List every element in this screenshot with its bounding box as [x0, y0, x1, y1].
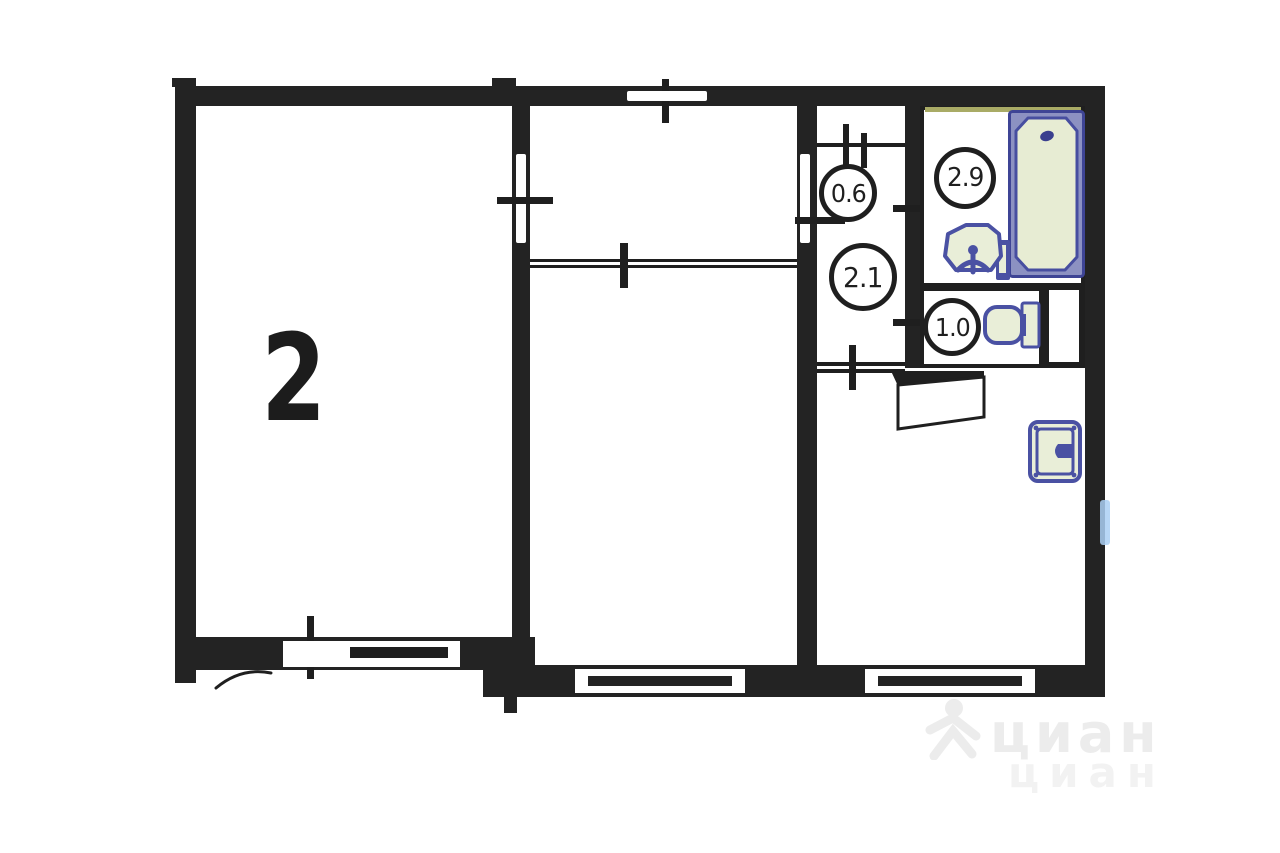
toilet-icon [982, 300, 1042, 350]
bath-sink-icon [936, 220, 1014, 286]
room-number-text: 2 [261, 310, 326, 449]
room-number-label: 2 [261, 320, 326, 440]
door-tick-left-room [497, 197, 553, 204]
wc-area-value: 1.0 [935, 313, 970, 342]
niche-box [1043, 284, 1085, 368]
watermark-text: циан [1008, 748, 1166, 797]
window-icon [575, 669, 745, 676]
partition-middle-room-b [530, 265, 797, 268]
partition-middle-room-a [530, 259, 797, 262]
window-icon [865, 686, 1035, 693]
window-sill-cap [732, 676, 745, 686]
bathtub-icon [1008, 110, 1085, 278]
kitchen-sink-icon [1028, 420, 1082, 483]
door-leaf-icon [890, 368, 990, 432]
floor-plan: 2 0.6 2.1 2.9 1.0 циан циан [0, 0, 1280, 853]
door-leaf-middle-room [800, 154, 810, 243]
door-swing-arc-icon [210, 664, 276, 692]
area-badge-wc: 1.0 [923, 298, 981, 356]
window-sill-cap [865, 676, 878, 686]
entrance-door-tick-b [861, 133, 867, 168]
window-icon [575, 686, 745, 693]
window-sash [350, 647, 448, 658]
wall-right-exterior [1085, 86, 1105, 697]
window-icon [865, 669, 1035, 676]
window-sill-cap [1022, 676, 1035, 686]
partition-corridor-bottom-a [817, 362, 905, 366]
wall-stub-top-middle [492, 78, 516, 87]
area-badge-bathroom: 2.9 [934, 147, 996, 209]
watermark-figure-icon [922, 696, 984, 760]
area-badge-closet: 0.6 [819, 164, 877, 222]
area-badge-hallway: 2.1 [829, 243, 897, 311]
watermark-brand-secondary: циан [1008, 748, 1166, 797]
balcony-door-opening [283, 641, 337, 667]
wall-left-exterior [175, 86, 196, 683]
window-sill-cap [575, 676, 588, 686]
radiator-icon [1100, 500, 1110, 545]
top-window-tick [662, 79, 669, 123]
door-tick-kitchen [849, 345, 856, 390]
wall-stub-top-left [172, 78, 196, 87]
bathroom-area-value: 2.9 [947, 163, 983, 193]
window-icon [627, 91, 707, 101]
partition-door-tick [620, 243, 628, 288]
hallway-area-value: 2.1 [843, 261, 882, 294]
closet-area-value: 0.6 [831, 179, 866, 208]
wall-stub-bottom [504, 697, 517, 713]
